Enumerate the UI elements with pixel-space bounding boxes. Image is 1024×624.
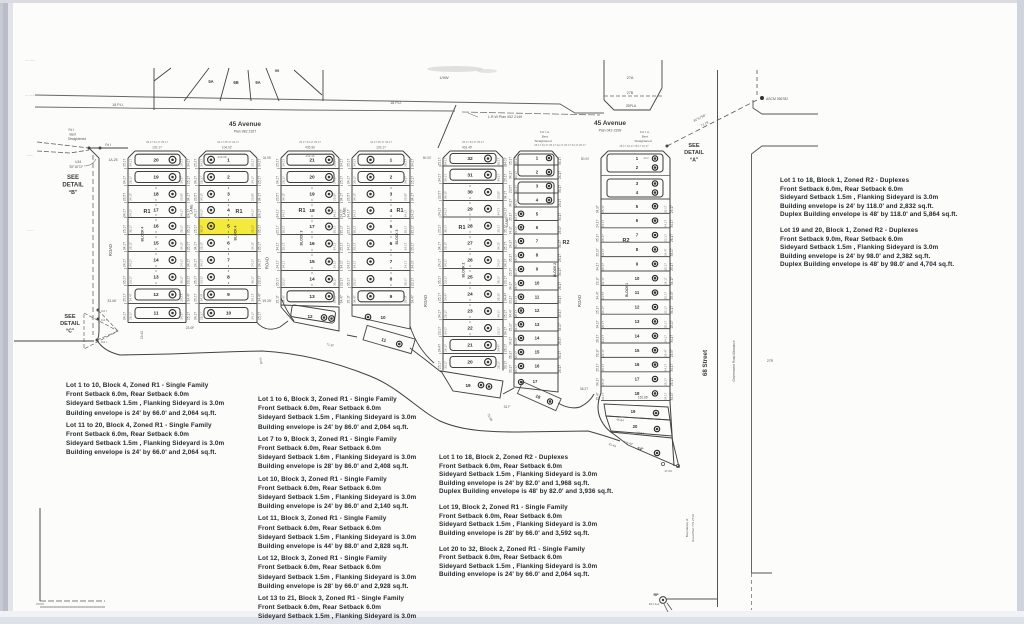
svg-text:11: 11	[535, 294, 540, 299]
svg-text:— ——: — ——	[25, 58, 35, 62]
svg-text:34.47: 34.47	[257, 293, 261, 301]
svg-text:24.17: 24.17	[558, 171, 562, 179]
svg-text:RP: RP	[654, 593, 660, 597]
svg-text:23.5T: 23.5T	[123, 193, 127, 201]
svg-text:45 Avenue: 45 Avenue	[229, 121, 261, 128]
svg-text:152.86': 152.86'	[638, 396, 649, 400]
svg-text:13: 13	[153, 275, 159, 281]
svg-text:33.17: 33.17	[509, 365, 513, 373]
svg-text:DETAIL: DETAIL	[62, 183, 84, 189]
svg-text:19.42: 19.42	[140, 331, 144, 339]
svg-text:25.17: 25.17	[601, 263, 605, 271]
svg-text:34.17: 34.17	[496, 208, 500, 216]
svg-text:34.17: 34.17	[670, 363, 674, 371]
svg-text:Fd. I.A.: Fd. I.A.	[540, 130, 550, 134]
svg-text:35.17: 35.17	[282, 225, 286, 233]
svg-text:25.1T: 25.1T	[123, 293, 127, 301]
svg-text:19: 19	[465, 383, 471, 388]
svg-text:34.47: 34.47	[664, 248, 668, 256]
svg-text:25.1T: 25.1T	[250, 293, 254, 301]
svg-text:3: 3	[390, 192, 393, 198]
svg-text:25.17: 25.17	[179, 159, 183, 167]
svg-text:“C”: “C”	[66, 329, 75, 335]
svg-text:34.17: 34.17	[179, 312, 183, 320]
svg-text:4.54: 4.54	[75, 160, 82, 164]
svg-text:23.0F: 23.0F	[186, 326, 195, 330]
svg-text:11: 11	[635, 290, 640, 295]
svg-text:R1: R1	[459, 225, 466, 231]
svg-text:35.17: 35.17	[509, 254, 513, 262]
svg-text:25.17: 25.17	[444, 174, 448, 182]
svg-text:34.17: 34.17	[558, 323, 562, 331]
svg-text:34.17: 34.17	[410, 158, 414, 166]
svg-text:Fd I.b.A: Fd I.b.A	[649, 602, 660, 606]
svg-text:4: 4	[227, 208, 230, 214]
svg-text:36.2T: 36.2T	[580, 387, 588, 391]
svg-text:23.5T: 23.5T	[276, 193, 280, 201]
svg-text:25.1T: 25.1T	[194, 293, 198, 301]
svg-text:7: 7	[390, 259, 393, 265]
svg-text:ROAD: ROAD	[265, 257, 270, 269]
svg-text:23.17: 23.17	[410, 278, 414, 286]
svg-text:34.17: 34.17	[503, 327, 507, 335]
svg-text:11: 11	[153, 311, 158, 317]
svg-text:25.17: 25.17	[332, 225, 336, 233]
svg-text:34.17: 34.17	[664, 392, 668, 400]
svg-text:27A: 27A	[627, 76, 634, 80]
svg-text:34.17: 34.17	[514, 296, 518, 304]
svg-text:24.17: 24.17	[347, 260, 351, 268]
svg-text:24.17: 24.17	[509, 240, 513, 248]
svg-text:34.1T: 34.1T	[186, 193, 190, 201]
svg-text:68 Street: 68 Street	[702, 350, 709, 376]
svg-text:34.17: 34.17	[194, 209, 198, 217]
svg-text:34.47: 34.47	[186, 293, 190, 301]
svg-text:— —: — —	[27, 228, 34, 232]
svg-text:34.17: 34.17	[670, 335, 674, 343]
svg-text:34.17: 34.17	[601, 277, 605, 285]
svg-text:R1: R1	[144, 209, 151, 215]
svg-text:13: 13	[309, 294, 315, 300]
svg-text:12: 12	[635, 305, 640, 310]
svg-text:34.17: 34.17	[438, 173, 442, 181]
svg-text:25.17: 25.17	[514, 309, 518, 317]
svg-text:25.1T: 25.1T	[664, 205, 668, 213]
svg-text:35.17: 35.17	[129, 225, 133, 233]
svg-text:34.1T: 34.1T	[339, 193, 343, 201]
svg-text:25.17: 25.17	[509, 213, 513, 221]
svg-text:17: 17	[533, 379, 538, 384]
svg-text:32: 32	[467, 156, 473, 162]
svg-text:24.17: 24.17	[123, 259, 127, 267]
svg-text:34.95': 34.95'	[263, 156, 272, 160]
svg-text:25.17: 25.17	[250, 159, 254, 167]
svg-text:23.17: 23.17	[129, 276, 133, 284]
svg-text:34.17: 34.17	[514, 323, 518, 331]
svg-text:19: 19	[631, 409, 636, 414]
svg-text:34.47: 34.47	[496, 344, 500, 352]
svg-text:Government Road Allowance: Government Road Allowance	[732, 340, 736, 382]
svg-text:25.17: 25.17	[444, 310, 448, 318]
svg-text:433.49': 433.49'	[462, 146, 473, 150]
svg-text:13: 13	[635, 319, 640, 324]
svg-text:34.17: 34.17	[282, 159, 286, 167]
svg-text:34.1T: 34.1T	[601, 335, 605, 343]
svg-text:35.17: 35.17	[496, 276, 500, 284]
svg-text:15: 15	[153, 241, 159, 247]
svg-text:R1: R1	[397, 208, 404, 214]
svg-text:25.17: 25.17	[347, 158, 351, 166]
svg-text:25.17: 25.17	[558, 365, 562, 373]
svg-text:R1: R1	[299, 208, 306, 214]
svg-text:25.1T: 25.1T	[276, 295, 280, 303]
svg-text:24.17: 24.17	[496, 259, 500, 267]
svg-text:23.17: 23.17	[496, 327, 500, 335]
svg-text:23.5T: 23.5T	[438, 191, 442, 199]
svg-text:9: 9	[227, 292, 230, 298]
svg-text:ROAD: ROAD	[108, 244, 113, 256]
svg-text:25.17: 25.17	[438, 157, 442, 165]
svg-text:26.17: 26.17	[596, 335, 600, 343]
svg-text:24.17: 24.17	[257, 209, 261, 217]
svg-text:25.17: 25.17	[496, 225, 500, 233]
svg-text:34.1T: 34.1T	[503, 191, 507, 199]
svg-text:24.17: 24.17	[129, 209, 133, 217]
svg-text:10: 10	[226, 311, 232, 317]
svg-text:26.17: 26.17	[509, 351, 513, 359]
svg-text:33.17: 33.17	[670, 248, 674, 256]
svg-text:34.1T: 34.1T	[123, 242, 127, 250]
svg-text:25.17: 25.17	[664, 320, 668, 328]
svg-text:33.17: 33.17	[558, 296, 562, 304]
svg-text:23.5T: 23.5T	[332, 193, 336, 201]
svg-text:9: 9	[390, 294, 393, 300]
svg-text:34.1T: 34.1T	[353, 193, 357, 201]
svg-text:6: 6	[390, 241, 393, 247]
svg-text:23.17: 23.17	[339, 278, 343, 286]
svg-text:BLOCK 3: BLOCK 3	[395, 229, 399, 244]
svg-text:20: 20	[633, 424, 638, 429]
svg-text:Fd. I.A.: Fd. I.A.	[640, 130, 650, 134]
svg-text:34.17: 34.17	[664, 364, 668, 372]
svg-text:27B: 27B	[627, 91, 634, 95]
svg-text:25.1T: 25.1T	[596, 248, 600, 256]
svg-text:31: 31	[467, 172, 473, 178]
svg-text:SEE: SEE	[67, 175, 79, 181]
svg-text:23.17: 23.17	[509, 296, 513, 304]
svg-text:25.17: 25.17	[123, 225, 127, 233]
svg-text:26.17: 26.17	[503, 344, 507, 352]
svg-text:25.17: 25.17	[403, 225, 407, 233]
svg-text:34.17: 34.17	[129, 159, 133, 167]
svg-text:34.1T: 34.1T	[596, 205, 600, 213]
svg-text:23.5T: 23.5T	[514, 337, 518, 345]
svg-text:25.1T: 25.1T	[257, 242, 261, 250]
svg-text:34.47: 34.47	[438, 344, 442, 352]
svg-text:23.17: 23.17	[200, 276, 204, 284]
svg-text:10: 10	[535, 281, 540, 286]
svg-text:26.17: 26.17	[664, 292, 668, 300]
svg-text:6: 6	[227, 241, 230, 247]
svg-text:R1: R1	[236, 209, 243, 215]
svg-text:SEE: SEE	[688, 143, 699, 149]
svg-text:35.17: 35.17	[194, 276, 198, 284]
svg-text:3: 3	[227, 192, 230, 198]
svg-text:34.17: 34.17	[444, 327, 448, 335]
svg-text:21: 21	[467, 343, 473, 349]
svg-text:25.17: 25.17	[353, 176, 357, 184]
svg-text:23.17: 23.17	[444, 276, 448, 284]
svg-text:26.17: 26.17	[670, 234, 674, 242]
svg-text:34.17: 34.17	[403, 176, 407, 184]
svg-text:19.25': 19.25'	[262, 299, 271, 303]
svg-text:34.17: 34.17	[558, 268, 562, 276]
svg-text:15: 15	[535, 350, 540, 355]
svg-text:34.1T: 34.1T	[670, 392, 674, 400]
svg-text:25.47: 25.47	[664, 349, 668, 357]
svg-text:30: 30	[467, 190, 473, 196]
svg-text:25.47: 25.47	[670, 291, 674, 299]
svg-text:25.1T: 25.1T	[179, 293, 183, 301]
svg-text:34.17: 34.17	[664, 220, 668, 228]
svg-text:25.17: 25.17	[496, 157, 500, 165]
svg-text:104.02': 104.02'	[222, 146, 233, 150]
svg-text:35.17: 35.17	[257, 225, 261, 233]
svg-text:34.17: 34.17	[276, 176, 280, 184]
svg-text:25.47: 25.47	[601, 234, 605, 242]
svg-text:Fd I: Fd I	[105, 143, 111, 147]
svg-text:BLOCK 1: BLOCK 1	[625, 283, 629, 297]
svg-text:L.R.W Plan 052 2149: L.R.W Plan 052 2149	[488, 115, 522, 119]
svg-text:433.49: 433.49	[305, 154, 315, 158]
svg-text:34.17: 34.17	[186, 259, 190, 267]
svg-text:26.17: 26.17	[514, 226, 518, 234]
svg-text:18: 18	[309, 208, 315, 214]
svg-text:34.17: 34.17	[514, 213, 518, 221]
svg-text:34.1T: 34.1T	[276, 242, 280, 250]
svg-text:25.17: 25.17	[596, 363, 600, 371]
svg-text:34.17: 34.17	[496, 174, 500, 182]
svg-text:34.17: 34.17	[250, 209, 254, 217]
svg-text:23.17: 23.17	[353, 278, 357, 286]
svg-text:34.17: 34.17	[179, 209, 183, 217]
svg-text:23.5T: 23.5T	[403, 193, 407, 201]
svg-text:25.17: 25.17	[186, 312, 190, 320]
svg-text:8: 8	[227, 275, 230, 281]
svg-text:34.47: 34.47	[410, 295, 414, 303]
svg-text:'35°18'72″: '35°18'72″	[69, 165, 84, 169]
svg-text:23.17: 23.17	[558, 226, 562, 234]
svg-text:6B: 6B	[233, 80, 238, 85]
svg-text:35.17: 35.17	[558, 185, 562, 193]
svg-text:45 Avenue: 45 Avenue	[594, 120, 626, 127]
svg-text:34.17: 34.17	[123, 176, 127, 184]
svg-text:34.17: 34.17	[514, 351, 518, 359]
svg-text:25.17: 25.17	[496, 361, 500, 369]
svg-text:23.5T: 23.5T	[670, 349, 674, 357]
svg-text:14: 14	[535, 336, 540, 341]
svg-text:34.47: 34.47	[444, 293, 448, 301]
svg-text:34.47: 34.47	[596, 291, 600, 299]
svg-text:25.17: 25.17	[257, 312, 261, 320]
svg-text:50.00': 50.00'	[423, 156, 432, 160]
svg-text:26.17: 26.17	[444, 344, 448, 352]
svg-text:16: 16	[309, 241, 315, 247]
svg-text:34.17: 34.17	[347, 176, 351, 184]
svg-text:25.47: 25.47	[558, 337, 562, 345]
svg-text:18 P.U.: 18 P.U.	[390, 101, 402, 105]
svg-text:34.17 25.17 34.17: 34.17 25.17 34.17	[370, 140, 392, 144]
svg-text:23.5T: 23.5T	[179, 193, 183, 201]
svg-text:28: 28	[467, 223, 473, 229]
svg-text:35.17: 35.17	[123, 276, 127, 284]
svg-text:35.17: 35.17	[250, 276, 254, 284]
svg-text:29: 29	[467, 206, 473, 212]
svg-text:35.17: 35.17	[339, 225, 343, 233]
svg-text:34.17: 34.17	[596, 378, 600, 386]
svg-text:Plan 982 2327: Plan 982 2327	[234, 130, 257, 134]
svg-text:35.17: 35.17	[410, 225, 414, 233]
svg-text:24.17: 24.17	[438, 259, 442, 267]
svg-text:34.1T: 34.1T	[282, 193, 286, 201]
svg-text:25.1T: 25.1T	[601, 378, 605, 386]
svg-text:34.47: 34.47	[129, 293, 133, 301]
svg-text:23.17: 23.17	[186, 276, 190, 284]
svg-text:25.17 34.17 25.17: 25.17 34.17 25.17	[299, 140, 321, 144]
svg-text:34.17: 34.17	[194, 312, 198, 320]
svg-text:33.17: 33.17	[444, 361, 448, 369]
svg-text:31 F: 31 F	[504, 405, 511, 409]
svg-text:25.1T: 25.1T	[186, 242, 190, 250]
svg-text:34.1T: 34.1T	[496, 242, 500, 250]
svg-text:15: 15	[309, 259, 315, 265]
svg-text:25.17: 25.17	[503, 310, 507, 318]
svg-text:25.17: 25.17	[403, 159, 407, 167]
svg-text:17.23: 17.23	[664, 469, 672, 473]
svg-text:34.17: 34.17	[558, 213, 562, 221]
svg-text:34.1T: 34.1T	[194, 242, 198, 250]
svg-text:25.17 34.17 25.17: 25.17 34.17 25.17	[462, 140, 484, 144]
svg-text:Straightened: Straightened	[68, 137, 86, 141]
svg-text:34.17: 34.17	[186, 158, 190, 166]
svg-text:25.17: 25.17	[438, 224, 442, 232]
svg-text:10: 10	[635, 276, 640, 281]
svg-text:34.17: 34.17	[503, 157, 507, 165]
svg-text:34.47: 34.47	[282, 295, 286, 303]
svg-text:23.5T: 23.5T	[601, 292, 605, 300]
svg-text:25.1T: 25.1T	[496, 293, 500, 301]
svg-text:25.1T: 25.1T	[410, 242, 414, 250]
svg-text:25.17: 25.17	[282, 176, 286, 184]
svg-text:25PLA: 25PLA	[626, 104, 637, 108]
svg-text:2: 2	[390, 175, 393, 181]
svg-text:25.17: 25.17	[503, 173, 507, 181]
svg-text:Fd I: Fd I	[101, 340, 106, 344]
svg-text:24.17: 24.17	[601, 349, 605, 357]
svg-text:25.47: 25.47	[596, 392, 600, 400]
svg-text:33.17: 33.17	[596, 349, 600, 357]
svg-text:34.17: 34.17	[670, 219, 674, 227]
svg-text:33.17: 33.17	[503, 361, 507, 369]
svg-text:25.17: 25.17	[276, 158, 280, 166]
svg-text:18: 18	[153, 192, 159, 198]
svg-text:15: 15	[635, 348, 640, 353]
svg-text:34.17: 34.17	[601, 392, 605, 400]
svg-text:102.17: 102.17	[152, 146, 162, 150]
svg-text:25.17: 25.17	[179, 225, 183, 233]
svg-text:19: 19	[309, 192, 315, 198]
svg-text:34.47: 34.47	[339, 295, 343, 303]
svg-text:34.17: 34.17	[444, 157, 448, 165]
svg-text:33.17: 33.17	[514, 240, 518, 248]
svg-text:34.17: 34.17	[664, 277, 668, 285]
svg-text:14: 14	[153, 258, 159, 264]
svg-text:26: 26	[467, 258, 473, 264]
svg-text:1A-25: 1A-25	[108, 158, 117, 162]
svg-text:34.17: 34.17	[200, 159, 204, 167]
svg-text:34.1T: 34.1T	[509, 226, 513, 234]
svg-text:25.17: 25.17	[514, 199, 518, 207]
svg-text:34.17: 34.17	[353, 159, 357, 167]
svg-text:25.17 34.17 25.17 34.17: 25.17 34.17 25.17 34.17	[619, 144, 649, 148]
svg-text:25.17: 25.17	[129, 312, 133, 320]
svg-text:20: 20	[309, 175, 315, 181]
svg-text:24.17: 24.17	[276, 260, 280, 268]
svg-text:14.2: 14.2	[643, 156, 649, 160]
svg-text:34.1T: 34.1T	[438, 242, 442, 250]
svg-text:21: 21	[309, 157, 315, 163]
svg-text:25.17 34.17 25.17: 25.17 34.17 25.17	[146, 140, 168, 144]
svg-text:25: 25	[467, 275, 473, 281]
svg-text:— ——: — ——	[25, 93, 35, 97]
svg-text:25.17: 25.17	[509, 157, 513, 165]
svg-text:34.17: 34.17	[514, 157, 518, 165]
svg-text:34.17: 34.17	[509, 171, 513, 179]
svg-text:24: 24	[467, 292, 473, 298]
svg-text:“A”: “A”	[690, 158, 699, 164]
svg-text:1/9W: 1/9W	[439, 75, 449, 80]
svg-text:10: 10	[380, 315, 386, 320]
svg-text:34.1T: 34.1T	[200, 193, 204, 201]
svg-text:24.17: 24.17	[332, 260, 336, 268]
svg-text:34.17: 34.17	[353, 260, 357, 268]
svg-text:25.1T: 25.1T	[129, 242, 133, 250]
svg-text:34.17: 34.17	[257, 259, 261, 267]
svg-text:20: 20	[467, 360, 473, 366]
svg-text:34.47: 34.47	[514, 185, 518, 193]
svg-text:35.17: 35.17	[179, 276, 183, 284]
svg-text:25.1T: 25.1T	[558, 199, 562, 207]
svg-text:19: 19	[153, 175, 159, 181]
svg-text:34.47: 34.47	[200, 293, 204, 301]
svg-text:25.17: 25.17	[670, 205, 674, 213]
svg-text:25.17: 25.17	[670, 320, 674, 328]
svg-text:35.17: 35.17	[601, 364, 605, 372]
svg-text:35.17: 35.17	[276, 278, 280, 286]
svg-text:R2: R2	[623, 238, 630, 244]
svg-text:Bent: Bent	[542, 135, 548, 139]
svg-text:34.17: 34.17	[200, 259, 204, 267]
svg-text:34.17: 34.17	[339, 158, 343, 166]
svg-text:25.47: 25.47	[514, 282, 518, 290]
svg-text:34.17: 34.17	[601, 248, 605, 256]
svg-text:23.5T: 23.5T	[496, 191, 500, 199]
svg-text:25.17: 25.17	[596, 306, 600, 314]
svg-text:Road Plan 772 2719: Road Plan 772 2719	[691, 514, 695, 542]
svg-text:25.17: 25.17	[558, 309, 562, 317]
svg-text:27: 27	[467, 241, 473, 247]
svg-text:34.17: 34.17	[276, 209, 280, 217]
